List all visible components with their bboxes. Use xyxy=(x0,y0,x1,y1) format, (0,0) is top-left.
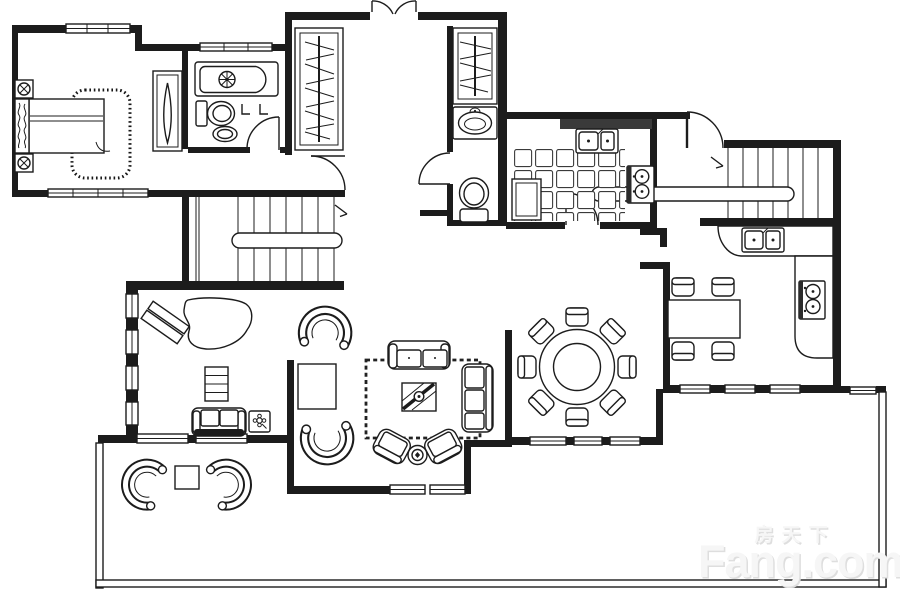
gas-stove-2-burner xyxy=(627,166,654,203)
dining-chair xyxy=(518,356,536,378)
sofa-back xyxy=(194,429,244,436)
armchair xyxy=(370,427,413,467)
vanity-basin xyxy=(453,107,497,139)
direction-arrow xyxy=(711,157,723,168)
kitchen-second xyxy=(668,226,833,360)
rect-table xyxy=(668,300,740,338)
pedestal-basin xyxy=(213,127,237,142)
grand-piano xyxy=(141,298,252,349)
coffee-table xyxy=(402,383,436,411)
window-bedroom-top xyxy=(66,24,130,33)
nightstand-lamp xyxy=(15,154,33,172)
wicker-chair xyxy=(302,421,353,462)
dining-chair xyxy=(566,308,588,326)
bathroom-ensuite xyxy=(195,62,278,142)
wardrobe-right xyxy=(453,28,497,104)
terrace-table xyxy=(175,466,199,489)
wicker-chair xyxy=(206,456,254,511)
door-bathroom2 xyxy=(419,153,450,184)
rect-table xyxy=(298,364,336,409)
kitchen-counter xyxy=(560,119,652,129)
terrace xyxy=(119,456,253,511)
door-dressing-hall xyxy=(311,156,345,190)
watermark-en: Fang.com xyxy=(698,536,900,587)
side-chair xyxy=(672,342,694,360)
headboard xyxy=(15,99,29,153)
kitchen-double-sink xyxy=(742,228,784,252)
round-side-table xyxy=(408,446,427,465)
floorplan-image: 房天下 房天下 Fang.com Fang.com xyxy=(0,0,900,600)
door-bathroom1 xyxy=(247,117,279,150)
three-seat-sofa xyxy=(462,364,493,432)
watermark: 房天下 房天下 Fang.com Fang.com xyxy=(698,523,900,589)
staircase-right xyxy=(592,148,818,218)
two-seat-sofa xyxy=(192,408,246,436)
window-sofa-bay xyxy=(390,485,465,494)
entry-double-door xyxy=(372,1,416,14)
nightstand-lamp xyxy=(15,80,33,98)
dining-chair xyxy=(618,356,636,378)
two-seat-sofa xyxy=(388,341,450,369)
wardrobe-left xyxy=(295,28,343,150)
side-chair xyxy=(672,278,694,296)
dining-room xyxy=(518,308,636,426)
wicker-chair xyxy=(119,456,167,511)
handrail xyxy=(232,233,342,248)
window-terrace-link xyxy=(850,387,876,394)
dining-chair xyxy=(566,408,588,426)
direction-arrow xyxy=(335,205,347,217)
towel-hooks xyxy=(242,104,268,114)
double-bed xyxy=(15,99,110,153)
window-dining-bay xyxy=(530,437,640,445)
flower-side-table xyxy=(249,411,270,432)
side-chair xyxy=(712,342,734,360)
side-chair xyxy=(712,278,734,296)
bookshelf xyxy=(205,367,228,401)
wicker-chair xyxy=(300,308,351,349)
dresser-cabinet xyxy=(153,71,182,151)
staircase-left xyxy=(196,197,347,281)
kitchen-main xyxy=(512,119,654,221)
window-bath-top xyxy=(200,43,272,51)
sofa-set xyxy=(366,341,493,466)
round-dining-table xyxy=(540,330,615,405)
toilet xyxy=(460,178,489,222)
window-kitchen2-bottom xyxy=(680,385,800,393)
gas-stove-2-burner xyxy=(799,281,825,319)
bathtub xyxy=(195,62,278,96)
kitchen-double-sink xyxy=(576,129,618,153)
bathroom-center xyxy=(453,107,497,222)
base-cabinet xyxy=(512,179,541,220)
bedroom-suite xyxy=(15,71,182,178)
armchair xyxy=(422,427,465,467)
toilet xyxy=(196,101,235,126)
door-stairs-right xyxy=(687,112,723,148)
window-bedroom-bottom xyxy=(48,189,148,197)
floor-plan-canvas: 房天下 房天下 Fang.com Fang.com xyxy=(0,0,900,600)
